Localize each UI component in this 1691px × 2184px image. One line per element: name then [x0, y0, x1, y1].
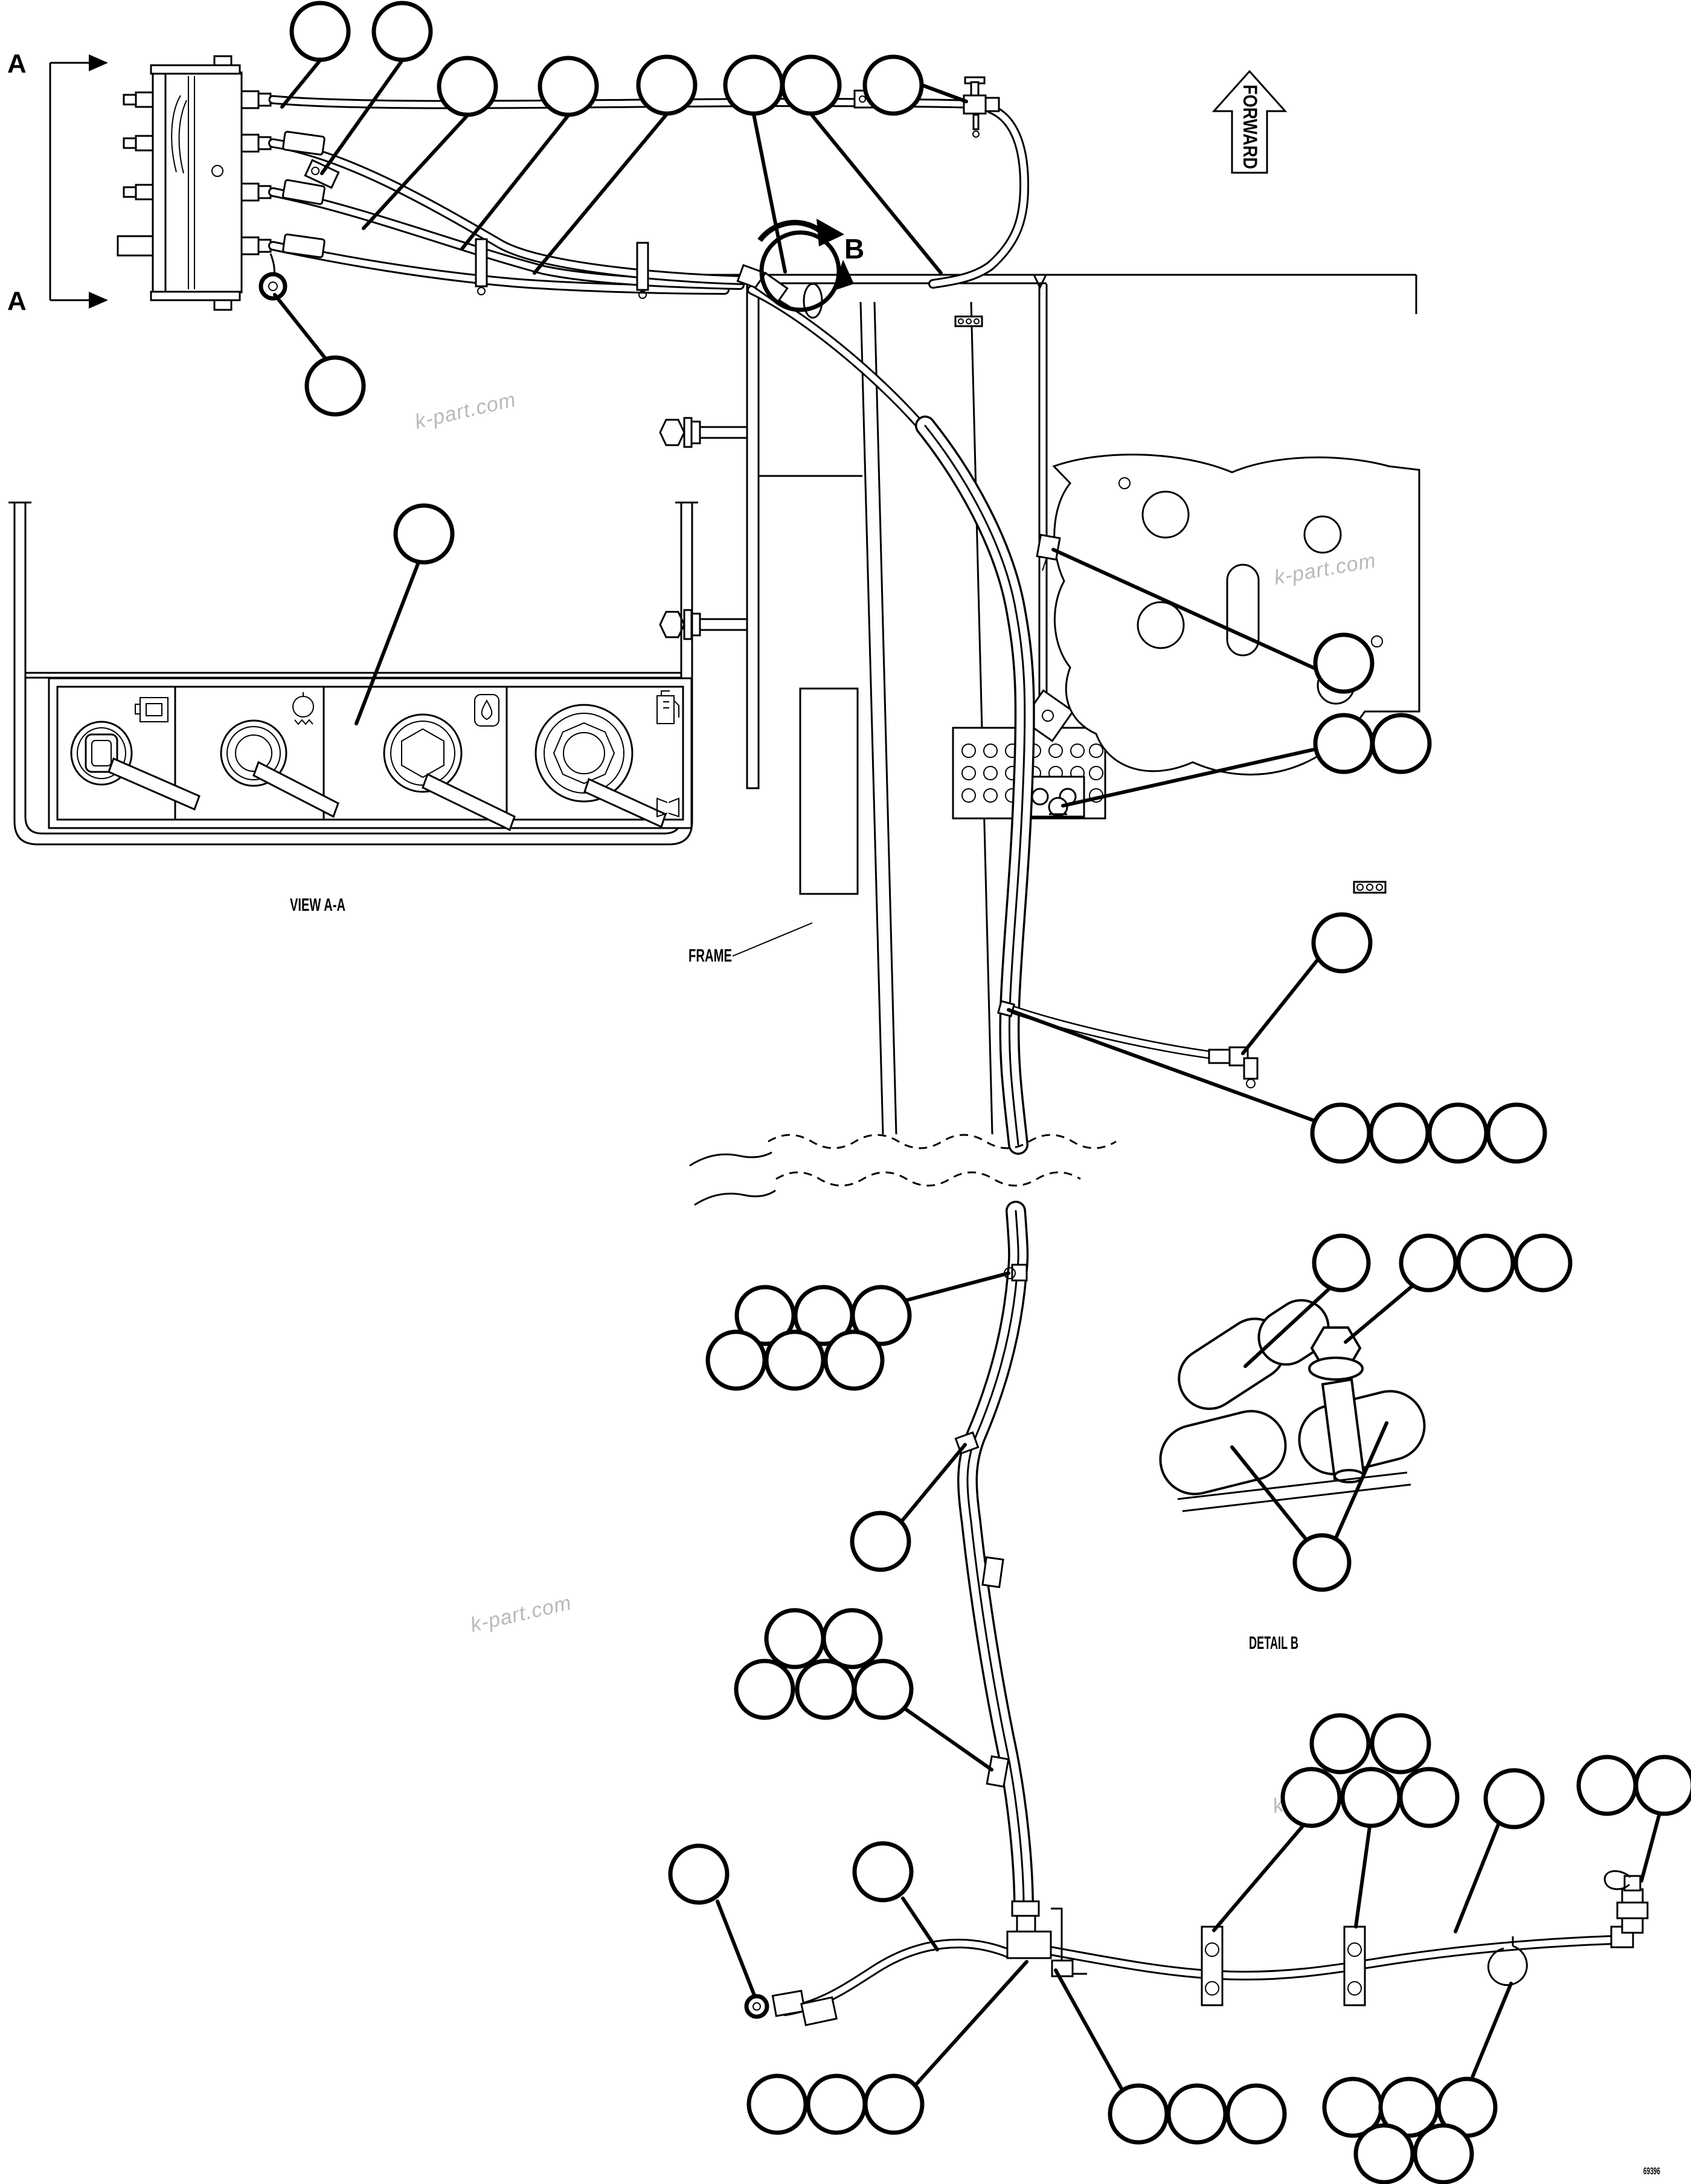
inline-fitting: [983, 1557, 1003, 1587]
callout-balloon: [797, 1661, 854, 1718]
manifold-plate: [153, 74, 165, 292]
leader-line: [1056, 1970, 1121, 2089]
callout-balloon: [1373, 715, 1429, 772]
leader-line: [903, 1898, 937, 1950]
callout-balloon: [1372, 1715, 1429, 1772]
forward-arrow: FORWARD: [1214, 71, 1285, 173]
leader-line: [916, 1962, 1027, 2085]
arrowhead: [89, 54, 108, 71]
watermark-text: k-part.com: [412, 388, 518, 433]
callout-balloon: [1636, 1757, 1691, 1814]
leader-line: [322, 60, 402, 173]
hose-end-fitting: [772, 1991, 804, 2016]
callout-balloon: [749, 2076, 806, 2133]
view-aa-panel: [8, 503, 698, 844]
callout-balloon: [1314, 914, 1370, 971]
callout-balloon: [1488, 1105, 1545, 1161]
frame-left-plate: [747, 284, 759, 788]
callout-balloon: [852, 1513, 909, 1570]
callout-balloon: [307, 358, 364, 414]
section-marker-label: A: [7, 49, 27, 79]
callout-balloon: [1486, 1770, 1542, 1827]
callout-balloon: [824, 1610, 881, 1667]
frame-lower-plate: [800, 689, 858, 894]
callout-balloon: [1314, 1236, 1369, 1290]
view-aa-label: VIEW A-A: [290, 895, 345, 915]
watermark-text: k-part.com: [468, 1591, 574, 1636]
leader-line: [1641, 1813, 1660, 1881]
leader-line: [904, 1708, 992, 1770]
section-marker-label: A: [7, 286, 27, 316]
manifold-tab: [214, 300, 231, 310]
callout-balloon: [1401, 1769, 1457, 1826]
callout-balloon: [855, 1661, 911, 1718]
frame-tower-edge: [861, 302, 883, 1134]
callout-balloon: [1458, 1236, 1513, 1290]
leader-line: [1346, 1285, 1413, 1342]
three-hole-strip: [1354, 882, 1385, 893]
three-hole-strip: [955, 316, 982, 326]
leader-line: [717, 1901, 755, 1997]
leader-line: [1471, 1983, 1511, 2080]
leader-line: [275, 295, 326, 359]
manifold-tab: [214, 56, 231, 65]
callout-balloon: [766, 1610, 823, 1667]
leader-line: [1356, 1826, 1370, 1927]
detail-b-label: DETAIL B: [1249, 1633, 1298, 1653]
callout-balloon: [766, 1332, 823, 1389]
manifold-flange: [151, 65, 240, 74]
callout-balloon: [865, 2076, 922, 2133]
hanger-bracket: [1202, 1927, 1222, 2005]
callout-balloon: [1312, 1105, 1369, 1161]
needle-valve: [964, 77, 999, 137]
hose-loop: [804, 284, 822, 318]
frame-tower-edge: [971, 302, 992, 1134]
callout-balloon: [1516, 1236, 1570, 1290]
callout-balloon: [1356, 2125, 1413, 2182]
callout-balloon: [1169, 2086, 1225, 2142]
leader-line: [1009, 1010, 1314, 1120]
manifold-backplate: [165, 72, 242, 292]
callout-balloon: [826, 1332, 882, 1389]
section-a-indicator: A A: [7, 49, 108, 316]
leader-line: [901, 1445, 965, 1522]
callout-balloon: [1312, 1715, 1369, 1772]
callout-balloon: [670, 1846, 727, 1903]
clamp-washer: [1309, 1358, 1362, 1379]
callout-balloon: [725, 57, 782, 114]
hose-pair-descent: [925, 426, 1025, 1901]
callout-balloon: [1579, 1757, 1635, 1814]
callout-balloon: [439, 58, 496, 115]
inline-fitting: [987, 1756, 1009, 1787]
callout-balloon: [396, 506, 452, 562]
clamp-strap: [637, 243, 648, 298]
leader-line: [462, 115, 568, 249]
eye-fitting: [746, 1996, 767, 2017]
callout-balloon: [1429, 1105, 1486, 1161]
clamp-strap: [476, 239, 487, 295]
frame-structure: [660, 275, 1419, 1134]
callout-balloon: [1110, 2086, 1167, 2142]
leader-line: [1455, 1823, 1499, 1932]
callout-balloon: [855, 1843, 911, 1900]
callout-balloon: [1415, 2125, 1472, 2182]
rotation-marker-label: B: [844, 233, 864, 265]
callout-balloon: [374, 3, 431, 60]
callout-balloon: [1228, 2086, 1285, 2142]
callout-balloon: [540, 58, 597, 115]
callout-balloon: [808, 2076, 865, 2133]
callout-balloon: [1315, 635, 1372, 692]
diagram-canvas: k-part.com k-part.com k-part.com k-part.…: [0, 0, 1691, 2184]
leader-line: [1243, 957, 1320, 1053]
frame-bolt: [660, 418, 747, 447]
elbow-fitting: [1209, 1047, 1257, 1088]
hanger-bracket: [1344, 1927, 1365, 2005]
callout-balloon: [1371, 1105, 1428, 1161]
drawing-number: 69396: [1643, 2165, 1660, 2177]
frame-leader-line: [733, 923, 812, 956]
hose-sleeve: [283, 132, 325, 155]
hose-sleeve: [283, 179, 325, 204]
clamp-lower-lobe: [1153, 1404, 1292, 1501]
callout-balloon: [1401, 1236, 1455, 1290]
diagram-page: k-part.com k-part.com k-part.com k-part.…: [0, 0, 1691, 2184]
leader-line: [906, 1273, 1009, 1300]
forward-arrow-label: FORWARD: [1239, 85, 1261, 169]
leader-line: [1214, 1824, 1304, 1930]
tee-fitting: [1007, 1901, 1087, 1976]
callout-balloon: [736, 1661, 793, 1718]
callout-balloon: [783, 57, 839, 114]
callout-balloon: [1343, 1769, 1399, 1826]
callout-balloon: [708, 1332, 765, 1389]
callout-balloon: [292, 3, 348, 60]
frame-label: FRAME: [688, 946, 732, 966]
callout-balloon: [1283, 1769, 1340, 1826]
callout-balloon: [865, 57, 922, 114]
frame-bolt: [660, 610, 747, 639]
frame-tower-edge: [874, 302, 896, 1134]
break-lines: [690, 1135, 1116, 1205]
arrowhead: [817, 219, 844, 246]
hose-routing: [273, 100, 1208, 1901]
manifold-flange: [151, 292, 240, 300]
callout-balloon: [638, 57, 695, 114]
callout-balloon: [1315, 715, 1372, 772]
detail-boundary-circle: [762, 233, 839, 310]
callout-balloon: [1295, 1535, 1349, 1590]
branch-clip: [998, 1001, 1014, 1016]
arrowhead: [89, 292, 108, 309]
